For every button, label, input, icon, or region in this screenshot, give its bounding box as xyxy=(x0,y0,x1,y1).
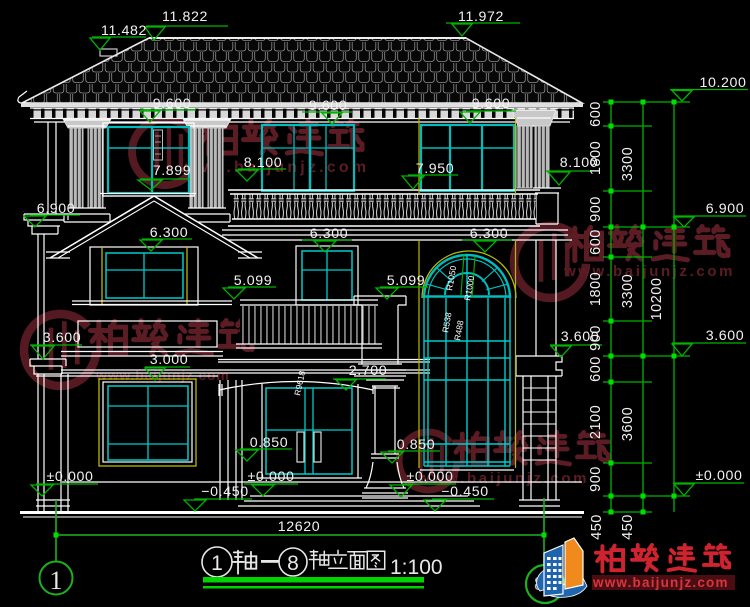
svg-text:6.300: 6.300 xyxy=(470,226,509,242)
svg-text:10.200: 10.200 xyxy=(700,75,747,91)
svg-text:900: 900 xyxy=(588,325,604,351)
svg-text:3300: 3300 xyxy=(620,147,636,181)
svg-text:5.099: 5.099 xyxy=(387,273,426,289)
svg-text:1: 1 xyxy=(50,566,63,595)
svg-text:9.600: 9.600 xyxy=(153,96,192,112)
svg-text:1800: 1800 xyxy=(588,272,604,306)
svg-text:11.972: 11.972 xyxy=(458,9,504,25)
svg-text:www.baijunjz.com: www.baijunjz.com xyxy=(592,575,729,590)
svg-text:3600: 3600 xyxy=(620,407,636,441)
svg-text:8: 8 xyxy=(287,552,299,575)
svg-text:600: 600 xyxy=(588,101,604,127)
svg-text:600: 600 xyxy=(588,356,604,382)
svg-text:3.600: 3.600 xyxy=(706,328,745,344)
svg-text:600: 600 xyxy=(588,229,604,255)
svg-text:9.600: 9.600 xyxy=(309,98,348,114)
svg-text:7.950: 7.950 xyxy=(416,161,455,177)
svg-text:6.300: 6.300 xyxy=(150,225,189,241)
svg-text:900: 900 xyxy=(588,466,604,492)
svg-text:6.900: 6.900 xyxy=(706,201,745,217)
svg-text:11.482: 11.482 xyxy=(101,23,147,39)
svg-text:−0.450: −0.450 xyxy=(441,484,488,500)
svg-text:1: 1 xyxy=(211,552,223,575)
svg-text:1800: 1800 xyxy=(588,141,604,175)
svg-text:3.000: 3.000 xyxy=(150,352,189,368)
svg-text:2.700: 2.700 xyxy=(349,363,388,379)
svg-text:±0.000: ±0.000 xyxy=(407,469,454,485)
svg-text:10200: 10200 xyxy=(649,278,665,321)
svg-text:8.100: 8.100 xyxy=(244,155,283,171)
svg-text:3300: 3300 xyxy=(620,274,636,308)
svg-text:6.900: 6.900 xyxy=(37,201,76,217)
svg-text:12620: 12620 xyxy=(278,519,320,535)
svg-text:450: 450 xyxy=(589,514,605,540)
svg-text:0.850: 0.850 xyxy=(250,435,289,451)
svg-text:9.600: 9.600 xyxy=(472,96,511,112)
svg-text:7.899: 7.899 xyxy=(153,163,192,179)
svg-text:±0.000: ±0.000 xyxy=(696,468,743,484)
svg-text:450: 450 xyxy=(620,514,636,540)
svg-text:−0.450: −0.450 xyxy=(201,484,248,500)
svg-text:±0.000: ±0.000 xyxy=(47,469,94,485)
svg-text:1:100: 1:100 xyxy=(390,556,443,579)
svg-text:11.822: 11.822 xyxy=(162,9,208,25)
svg-text:3.600: 3.600 xyxy=(43,330,82,346)
svg-text:900: 900 xyxy=(588,196,604,222)
svg-text:5.099: 5.099 xyxy=(234,273,273,289)
svg-text:±0.000: ±0.000 xyxy=(248,469,295,485)
svg-text:0.850: 0.850 xyxy=(397,437,436,453)
svg-text:6.300: 6.300 xyxy=(310,226,349,242)
svg-text:2100: 2100 xyxy=(588,405,604,439)
